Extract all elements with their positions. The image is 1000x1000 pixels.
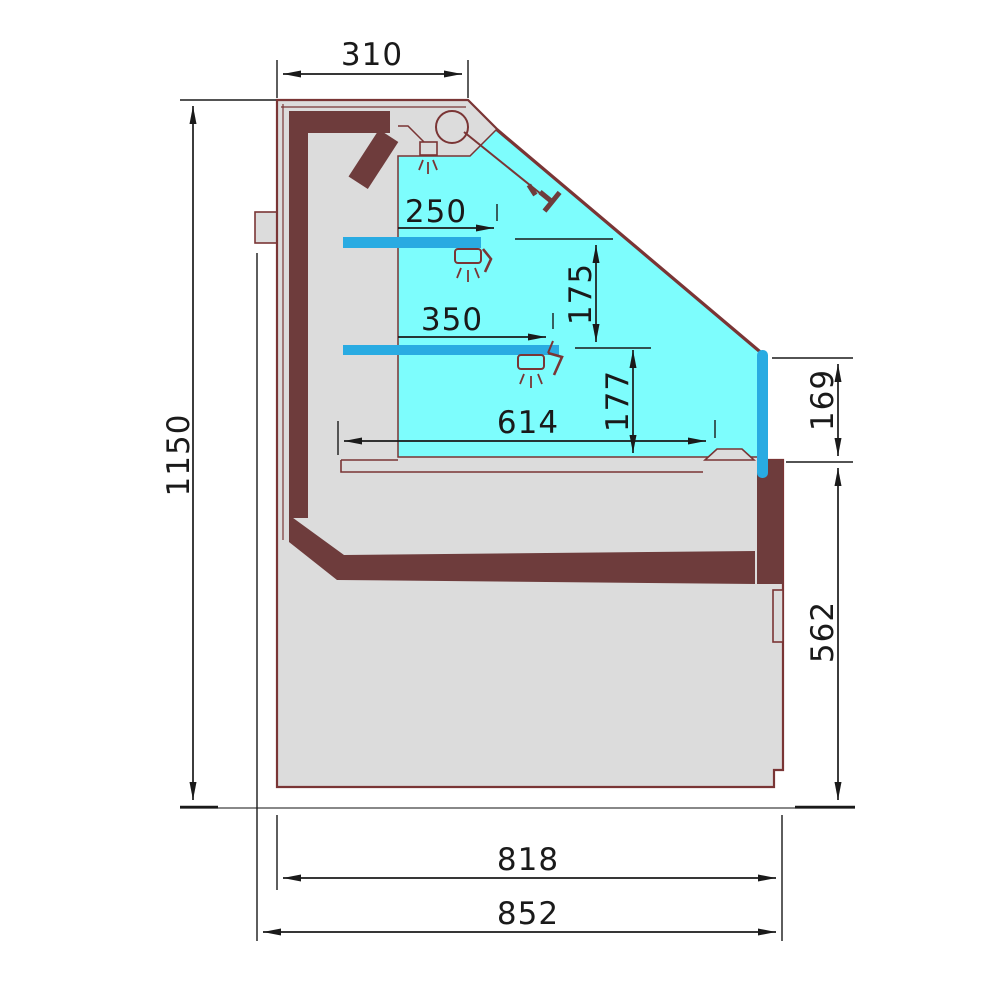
shelf-1-board — [343, 237, 481, 248]
dim-overall-height-label: 1150 — [161, 414, 197, 497]
dim-shelf-to-deck-label: 177 — [600, 370, 636, 432]
floor-line — [180, 807, 855, 808]
dim-lower-shelf-depth-label: 350 — [421, 302, 483, 338]
dim-overall-height: 1150 — [161, 100, 276, 800]
dim-body-depth-label: 818 — [497, 842, 559, 878]
dim-base-height: 562 — [805, 468, 841, 800]
air-curtain-roller — [436, 111, 468, 143]
dim-front-glass-edge: 169 — [772, 358, 853, 462]
door-handle — [773, 590, 783, 642]
dim-upper-shelf-depth-label: 250 — [405, 194, 467, 230]
dim-canopy-depth: 310 — [277, 37, 468, 98]
canopy-light — [420, 142, 437, 155]
shelf-2-board — [343, 345, 559, 355]
rear-duct-outlet — [255, 212, 279, 243]
front-insulation-block — [757, 460, 783, 584]
front-glass-edge-profile — [757, 350, 768, 478]
dim-base-height-label: 562 — [805, 601, 841, 663]
drawing-page: 310 1150 250 350 175 177 614 — [0, 0, 1000, 1000]
dim-shelf-spacing-label: 175 — [563, 263, 599, 325]
shelf-2-light — [518, 355, 544, 369]
dim-display-deck-depth-label: 614 — [497, 405, 559, 441]
shelf-1-light — [455, 249, 481, 263]
cross-section-drawing: 310 1150 250 350 175 177 614 — [0, 0, 1000, 1000]
dim-overall-depth-label: 852 — [497, 896, 559, 932]
dim-front-glass-edge-label: 169 — [805, 369, 841, 431]
dim-canopy-depth-label: 310 — [341, 37, 403, 73]
